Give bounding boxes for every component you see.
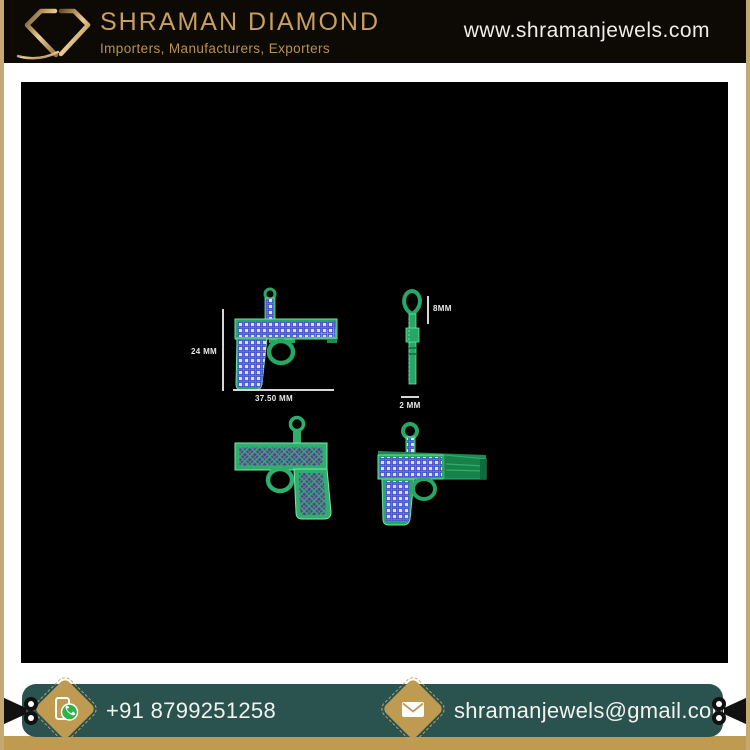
- email-address[interactable]: shramanjewels@gmail.com: [454, 684, 730, 737]
- envelope-icon-inner: [391, 687, 435, 731]
- phone-number[interactable]: +91 8799251258: [106, 684, 276, 737]
- website-link[interactable]: www.shramanjewels.com: [464, 19, 710, 43]
- film-camera-icon: [2, 695, 42, 727]
- whatsapp-phone-icon: [34, 678, 96, 740]
- height-dimension-line: [222, 309, 224, 391]
- width-dimension-label: 37.50 MM: [233, 394, 315, 403]
- thickness-dimension-line: [401, 396, 419, 398]
- brand-name: SHRAMAN DIAMOND: [100, 8, 380, 37]
- brand-block: SHRAMAN DIAMOND Importers, Manufacturers…: [100, 8, 380, 56]
- pendant-side-body: [404, 291, 420, 384]
- gun-front-body: [235, 289, 337, 390]
- footer-contact-bar: +91 8799251258 shramanjewels@gmail.com: [22, 684, 723, 737]
- page-root: SHRAMAN DIAMOND Importers, Manufacturers…: [0, 0, 750, 750]
- bail-height-dimension-line: [427, 296, 429, 324]
- height-dimension-label: 24 MM: [169, 347, 217, 356]
- footer-gold-strip: [0, 736, 750, 750]
- film-camera-icon: [708, 695, 748, 727]
- pendant-perspective-view-render: [374, 418, 492, 526]
- brand-tagline: Importers, Manufacturers, Exporters: [100, 41, 380, 56]
- diamond-logo-icon: [16, 4, 100, 60]
- gun-perspective-body: [378, 424, 486, 525]
- product-canvas: 24 MM 37.50 MM 8MM 2 MM: [21, 82, 728, 663]
- pendant-back-view-render: [230, 412, 335, 528]
- whatsapp-phone-icon-inner: [43, 687, 87, 731]
- pendant-front-view-render: [220, 286, 340, 396]
- pendant-side-view-render: [398, 288, 462, 410]
- width-dimension-line: [233, 389, 334, 391]
- envelope-icon: [382, 678, 444, 740]
- gun-back-body: [235, 418, 331, 520]
- thickness-dimension-label: 2 MM: [395, 401, 425, 410]
- bail-height-dimension-label: 8MM: [433, 304, 452, 313]
- right-frame-stripe: [746, 0, 750, 750]
- header-bar: SHRAMAN DIAMOND Importers, Manufacturers…: [0, 0, 750, 63]
- left-frame-stripe: [0, 0, 4, 750]
